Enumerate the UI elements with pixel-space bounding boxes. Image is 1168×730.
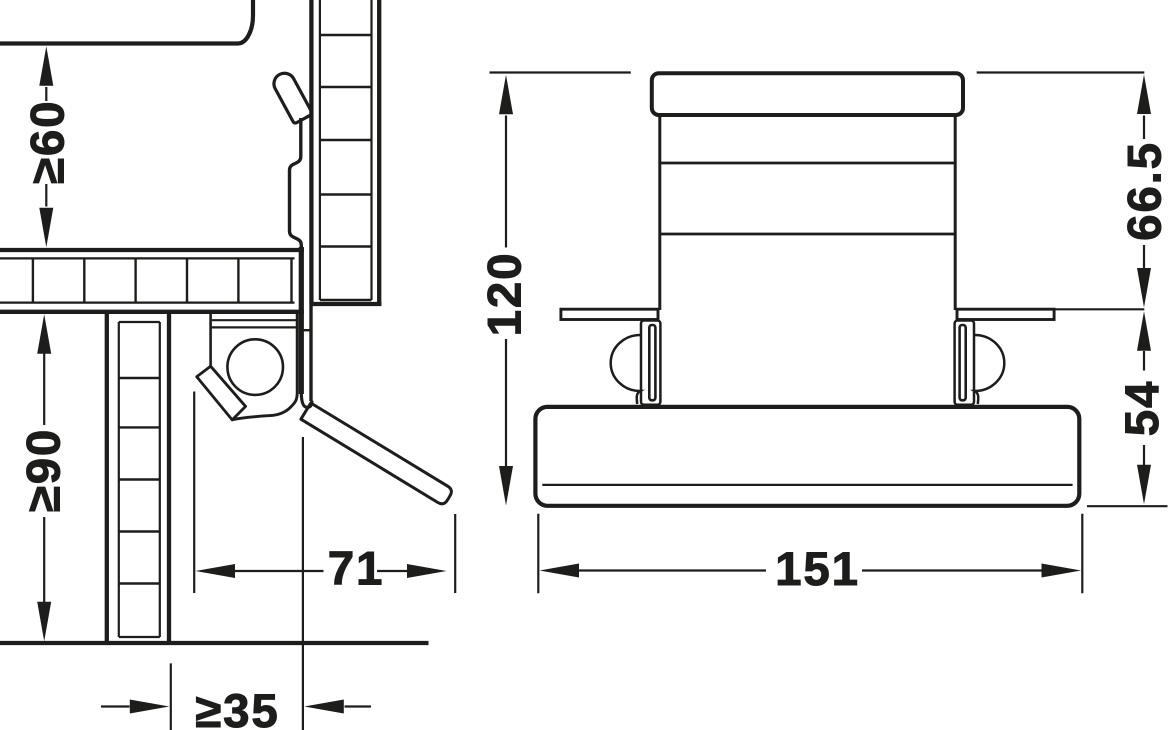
svg-text:66.5: 66.5: [1118, 141, 1168, 241]
svg-text:54: 54: [1116, 380, 1168, 436]
svg-text:71: 71: [328, 543, 384, 596]
svg-text:≥35: ≥35: [195, 685, 279, 730]
svg-text:≥90: ≥90: [18, 428, 71, 512]
svg-text:≥60: ≥60: [22, 100, 75, 184]
svg-text:151: 151: [775, 543, 860, 596]
svg-text:120: 120: [479, 252, 532, 337]
